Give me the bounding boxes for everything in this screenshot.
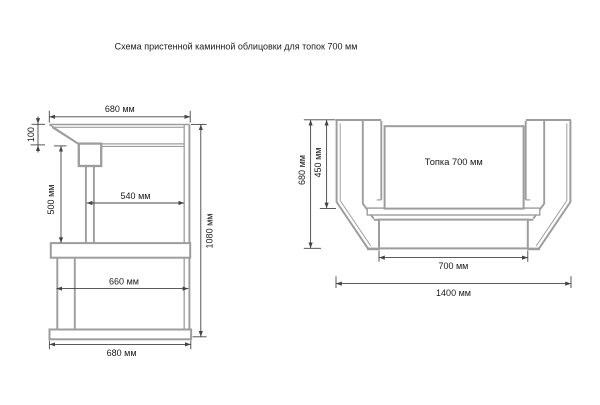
side-total-height-label: 1080 мм [204,214,214,249]
side-hood-slope-inner [52,128,81,147]
dim-front-firebox-width: 700 мм [379,251,528,271]
front-left-pillar-inner-line [340,123,371,246]
front-firebox [385,126,524,208]
side-flue-box [79,144,101,166]
front-view-drawing: Топка 700 мм 680 мм 450 мм 700 мм 1400 м [297,120,571,298]
front-firebox-height-label: 450 мм [313,148,323,178]
front-right-pillar-face-edge [533,120,544,219]
side-base-width-label: 680 мм [107,348,137,358]
dim-side-base-width: 680 мм [49,341,190,359]
front-total-height-label: 680 мм [297,155,307,185]
dim-side-total-height: 1080 мм [191,124,214,336]
side-top-width-label: 680 мм [105,104,135,114]
side-base [50,330,192,340]
front-total-width-label: 1400 мм [436,288,471,298]
front-hearth-step [379,220,528,249]
diagram-canvas: Схема пристенной каминной облицовки для … [0,0,600,400]
dim-side-hood-height: 100 [26,117,45,153]
side-hood-height-label: 100 [26,127,36,142]
dim-side-opening-width: 540 мм [87,191,185,203]
dim-front-total-width: 1400 мм [336,276,571,298]
front-right-pillar [526,120,571,249]
page-title: Схема пристенной каминной облицовки для … [115,42,358,52]
dim-side-lower-width: 660 мм [56,276,188,288]
front-left-pillar [336,120,381,249]
side-shelf [51,243,190,258]
side-opening-width-label: 540 мм [121,191,151,201]
front-left-pillar-face-edge [363,120,374,219]
dim-side-opening-height: 500 мм [46,146,67,243]
front-firebox-width-label: 700 мм [438,261,468,271]
side-lower-width-label: 660 мм [109,276,139,286]
side-view-drawing: 680 мм 100 500 мм 540 мм 660 мм [26,104,214,358]
side-opening-height-label: 500 мм [46,185,56,215]
dim-side-top-width: 680 мм [49,104,190,123]
dim-front-firebox-height: 450 мм [313,120,336,209]
dim-front-total-height: 680 мм [297,120,336,249]
front-firebox-label: Топка 700 мм [425,157,483,167]
front-right-pillar-inner-line [536,123,567,246]
